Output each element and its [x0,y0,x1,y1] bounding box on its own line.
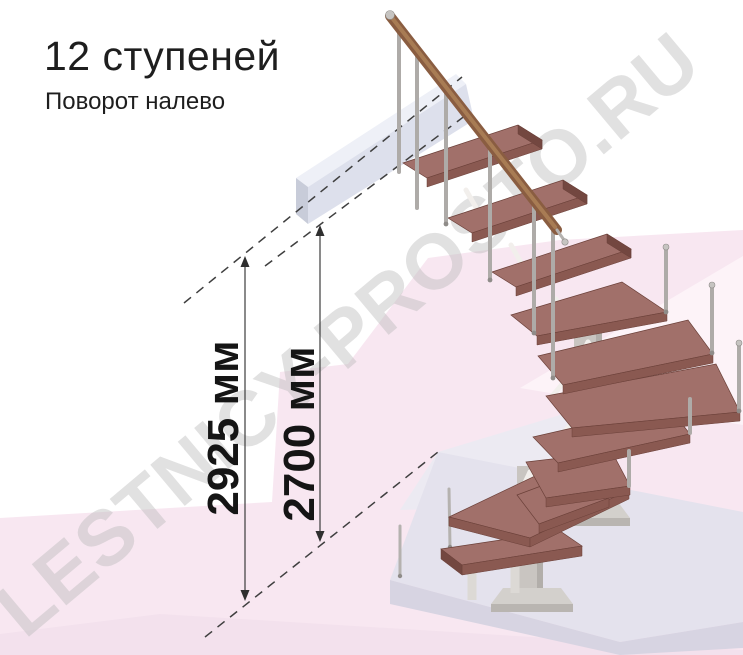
handrail-top-knob [386,11,395,20]
staircase-diagram-page: LESTNICY-PROSTO.RU [0,0,743,655]
overall-height-label: 2925 мм [199,340,248,515]
floor-height-label: 2700 мм [275,346,324,521]
page-subtitle: Поворот налево [45,88,225,116]
page-title: 12 ступеней [44,34,280,79]
handrail-end-fitting [562,239,568,245]
